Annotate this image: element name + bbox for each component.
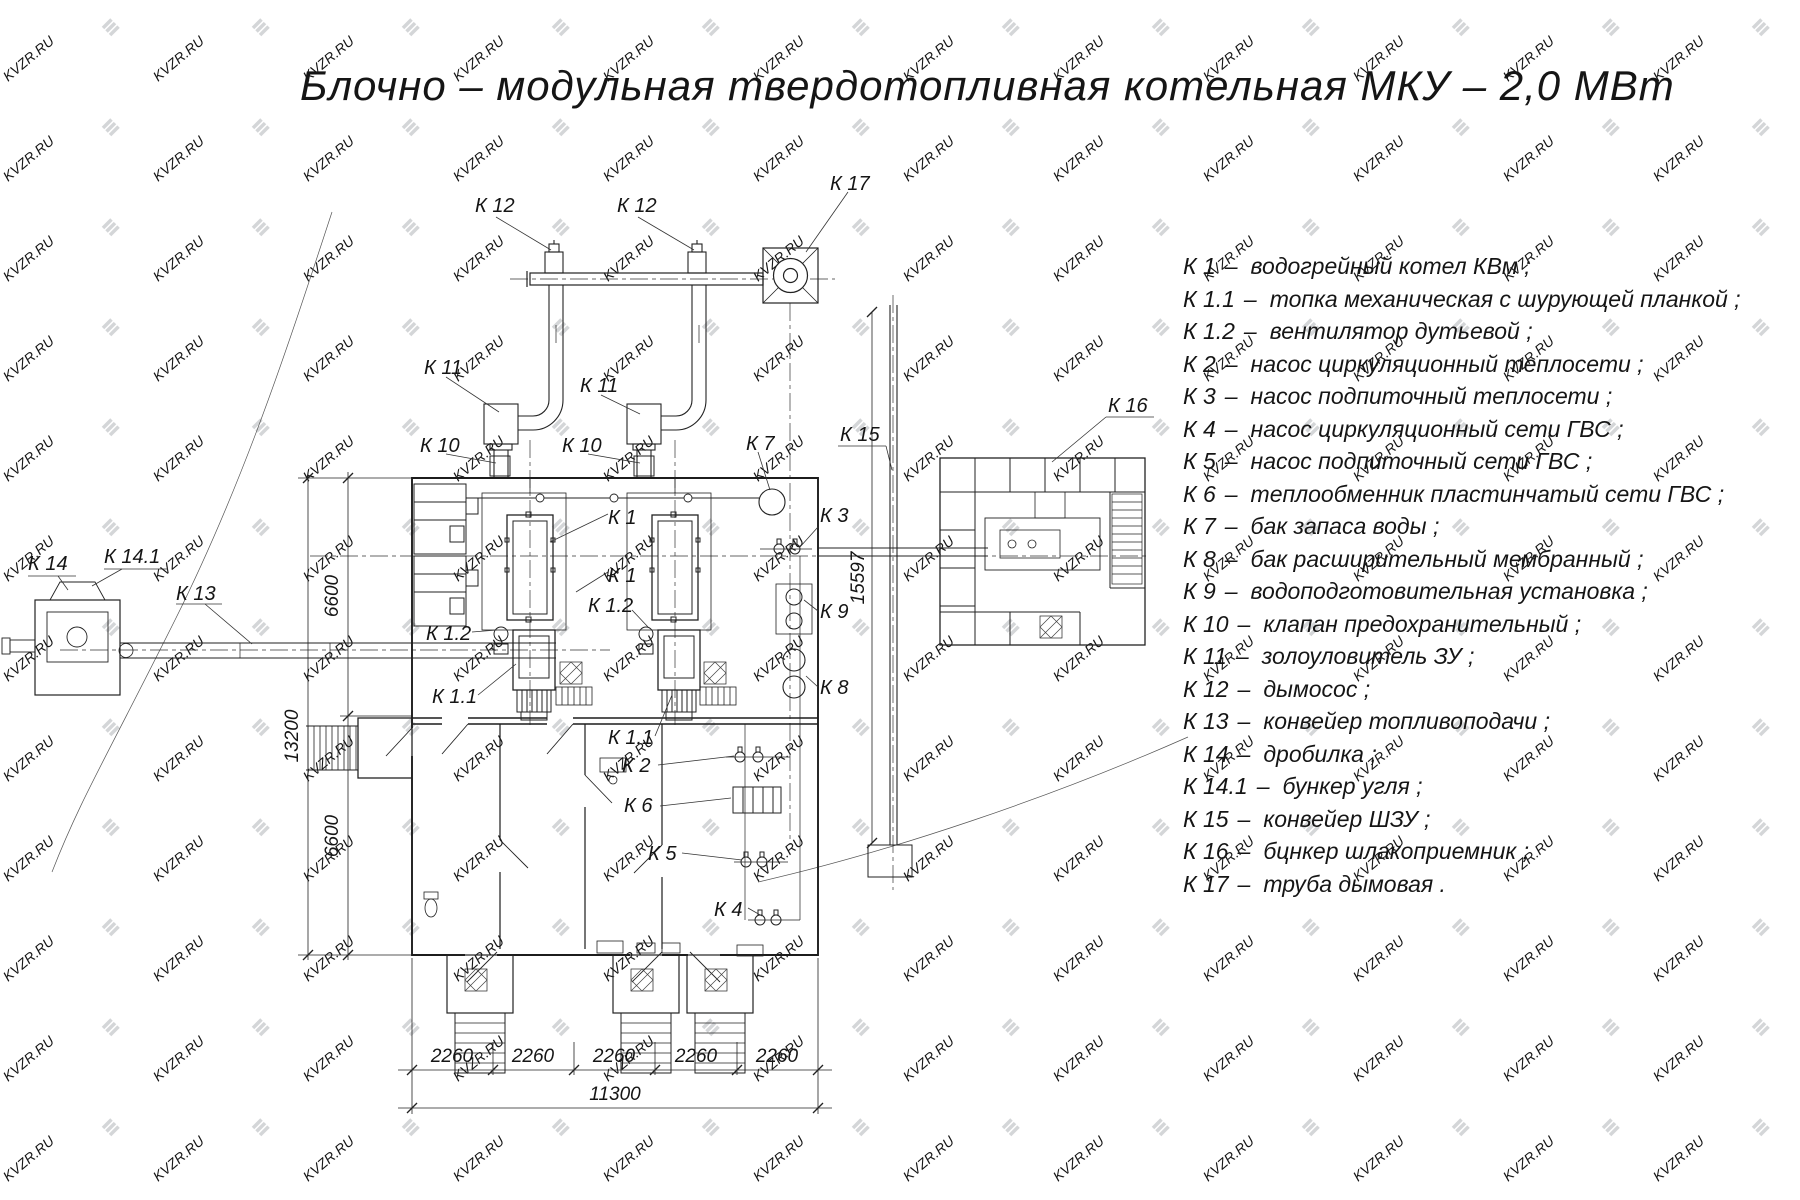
- legend-item: К 14.1–бункер угля ;: [1183, 770, 1741, 803]
- legend-code: К 7: [1183, 510, 1216, 543]
- legend-dash: –: [1238, 738, 1251, 771]
- dim-left-overall: 13200: [282, 709, 303, 762]
- legend-desc: конвейер ШЗУ ;: [1263, 806, 1430, 832]
- legend-code: К 9: [1183, 575, 1216, 608]
- legend-code: К 15: [1183, 803, 1229, 836]
- legend-item: К 1.2–вентилятор дутьевой ;: [1183, 315, 1741, 348]
- legend-item: К 9–водоподготовительная установка ;: [1183, 575, 1741, 608]
- dim-bottom-seg-5: 2260: [755, 1046, 799, 1067]
- legend-code: К 3: [1183, 380, 1216, 413]
- label-k1-1-right: К 1.1: [608, 727, 653, 749]
- dim-bottom-total: 11300: [589, 1084, 641, 1105]
- legend-item: К 7–бак запаса воды ;: [1183, 510, 1741, 543]
- dim-bottom-seg-1: 2260: [430, 1046, 474, 1067]
- legend-desc: теплообменник пластинчатый сети ГВС ;: [1251, 481, 1725, 507]
- label-k12-left: К 12: [475, 195, 515, 217]
- legend-dash: –: [1225, 348, 1238, 381]
- legend-desc: вентилятор дутьевой ;: [1270, 318, 1533, 344]
- legend-item: К 15–конвейер ШЗУ ;: [1183, 803, 1741, 836]
- legend-dash: –: [1238, 705, 1251, 738]
- legend-dash: –: [1244, 315, 1257, 348]
- legend-dash: –: [1225, 380, 1238, 413]
- equipment-legend: К 1–водогрейный котел КВм ; К 1.1–топка …: [1183, 250, 1741, 900]
- legend-code: К 11: [1183, 640, 1227, 673]
- legend-desc: топка механическая с шурующей планкой ;: [1270, 286, 1741, 312]
- legend-dash: –: [1225, 575, 1238, 608]
- legend-dash: –: [1238, 868, 1251, 901]
- legend-item: К 14–дробилка ;: [1183, 738, 1741, 771]
- legend-code: К 4: [1183, 413, 1216, 446]
- legend-desc: бункер угля ;: [1283, 773, 1423, 799]
- legend-item: К 3–насос подпиточный теплосети ;: [1183, 380, 1741, 413]
- label-k12-right: К 12: [617, 195, 657, 217]
- legend-item: К 8–бак расширительный мембранный ;: [1183, 543, 1741, 576]
- legend-item: К 16–бцнкер шлакоприемник ;: [1183, 835, 1741, 868]
- label-k10-right: К 10: [562, 435, 602, 457]
- label-k1-top: К 1: [608, 507, 636, 529]
- legend-code: К 17: [1183, 868, 1229, 901]
- legend-code: К 6: [1183, 478, 1216, 511]
- legend-desc: бак запаса воды ;: [1251, 513, 1440, 539]
- legend-dash: –: [1225, 250, 1238, 283]
- dim-conveyor-height: 15597: [848, 550, 869, 604]
- legend-desc: золоуловитель ЗУ ;: [1262, 643, 1475, 669]
- legend-code: К 14: [1183, 738, 1229, 771]
- legend-dash: –: [1257, 770, 1270, 803]
- legend-desc: дробилка ;: [1263, 741, 1376, 767]
- legend-item: К 12–дымосос ;: [1183, 673, 1741, 706]
- legend-dash: –: [1244, 283, 1257, 316]
- legend-code: К 10: [1183, 608, 1229, 641]
- legend-dash: –: [1225, 478, 1238, 511]
- legend-dash: –: [1225, 445, 1238, 478]
- legend-dash: –: [1225, 543, 1238, 576]
- label-k7: К 7: [746, 433, 775, 455]
- legend-item: К 11–золоуловитель ЗУ ;: [1183, 640, 1741, 673]
- legend-desc: клапан предохранительный ;: [1263, 611, 1581, 637]
- label-k8: К 8: [820, 677, 848, 699]
- label-k1-bottom: К 1: [608, 565, 636, 587]
- label-k10-left: К 10: [420, 435, 460, 457]
- legend-dash: –: [1238, 608, 1251, 641]
- legend-code: К 14.1: [1183, 770, 1248, 803]
- label-k9: К 9: [820, 601, 848, 623]
- label-k13: К 13: [176, 583, 216, 605]
- legend-code: К 1.2: [1183, 315, 1235, 348]
- dim-left-bottom: 6600: [322, 814, 343, 857]
- legend-desc: бцнкер шлакоприемник ;: [1263, 838, 1529, 864]
- legend-dash: –: [1238, 803, 1251, 836]
- label-k5: К 5: [648, 843, 677, 865]
- drawing-sheet: KVZR.RU: [0, 0, 1800, 1200]
- label-k16: К 16: [1108, 395, 1148, 417]
- label-k11-left: К 11: [424, 357, 462, 379]
- legend-item: К 17–труба дымовая .: [1183, 868, 1741, 901]
- legend-dash: –: [1225, 510, 1238, 543]
- legend-desc: водоподготовительная установка ;: [1251, 578, 1648, 604]
- legend-item: К 10–клапан предохранительный ;: [1183, 608, 1741, 641]
- legend-desc: насос циркуляционный сети ГВС ;: [1251, 416, 1624, 442]
- legend-code: К 16: [1183, 835, 1229, 868]
- legend-code: К 1: [1183, 250, 1216, 283]
- label-k6: К 6: [624, 795, 653, 817]
- label-k4: К 4: [714, 899, 742, 921]
- legend-dash: –: [1225, 413, 1238, 446]
- legend-desc: насос циркуляционный теплосети ;: [1251, 351, 1644, 377]
- legend-code: К 8: [1183, 543, 1216, 576]
- label-k15: К 15: [840, 424, 880, 446]
- legend-desc: конвейер топливоподачи ;: [1263, 708, 1550, 734]
- legend-desc: труба дымовая .: [1263, 871, 1446, 897]
- dim-bottom-seg-3: 2260: [592, 1046, 636, 1067]
- label-k11-right: К 11: [580, 375, 618, 397]
- legend-desc: насос подпиточный сети ГВС ;: [1251, 448, 1593, 474]
- legend-item: К 6–теплообменник пластинчатый сети ГВС …: [1183, 478, 1741, 511]
- legend-code: К 2: [1183, 348, 1216, 381]
- legend-code: К 5: [1183, 445, 1216, 478]
- legend-desc: дымосос ;: [1263, 676, 1370, 702]
- legend-item: К 4–насос циркуляционный сети ГВС ;: [1183, 413, 1741, 446]
- label-k3: К 3: [820, 505, 848, 527]
- label-k1-1-left: К 1.1: [432, 686, 477, 708]
- label-k1-2-right: К 1.2: [588, 595, 633, 617]
- legend-desc: бак расширительный мембранный ;: [1251, 546, 1644, 572]
- legend-item: К 2–насос циркуляционный теплосети ;: [1183, 348, 1741, 381]
- label-k1-2-left: К 1.2: [426, 623, 471, 645]
- legend-dash: –: [1238, 673, 1251, 706]
- legend-code: К 12: [1183, 673, 1229, 706]
- dim-bottom-seg-2: 2260: [511, 1046, 555, 1067]
- legend-code: К 1.1: [1183, 283, 1235, 316]
- label-k14: К 14: [28, 553, 68, 575]
- legend-item: К 1–водогрейный котел КВм ;: [1183, 250, 1741, 283]
- legend-dash: –: [1236, 640, 1249, 673]
- label-k17: К 17: [830, 173, 870, 195]
- legend-dash: –: [1238, 835, 1251, 868]
- label-k2: К 2: [622, 755, 650, 777]
- dim-bottom-seg-4: 2260: [674, 1046, 718, 1067]
- legend-item: К 1.1–топка механическая с шурующей план…: [1183, 283, 1741, 316]
- legend-code: К 13: [1183, 705, 1229, 738]
- legend-item: К 5–насос подпиточный сети ГВС ;: [1183, 445, 1741, 478]
- page-title: Блочно – модульная твердотопливная котел…: [300, 62, 1675, 110]
- legend-item: К 13–конвейер топливоподачи ;: [1183, 705, 1741, 738]
- legend-desc: водогрейный котел КВм ;: [1251, 253, 1531, 279]
- dim-left-top: 6600: [322, 574, 343, 617]
- legend-desc: насос подпиточный теплосети ;: [1251, 383, 1613, 409]
- label-k14-1: К 14.1: [104, 546, 160, 568]
